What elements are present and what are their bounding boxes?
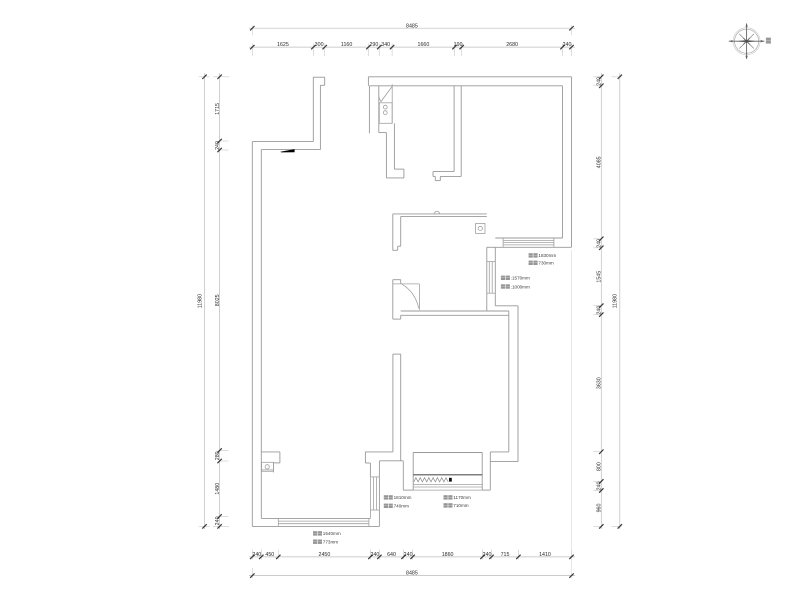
svg-text:11980: 11980	[612, 294, 618, 308]
svg-text:1810mm: 1810mm	[394, 495, 412, 500]
svg-text:1160: 1160	[341, 42, 352, 48]
svg-text:730mm: 730mm	[538, 261, 553, 266]
svg-text:240: 240	[215, 516, 221, 525]
svg-text:240: 240	[215, 141, 221, 150]
svg-text:11980: 11980	[198, 294, 204, 308]
svg-text:240: 240	[597, 239, 603, 248]
svg-text:240: 240	[404, 552, 413, 558]
svg-text:960: 960	[597, 504, 603, 513]
svg-text::1570mm: :1570mm	[511, 276, 530, 281]
svg-text:280: 280	[215, 451, 221, 460]
svg-text:240: 240	[483, 552, 492, 558]
svg-text:1860: 1860	[442, 552, 454, 558]
svg-text:4085: 4085	[597, 156, 603, 168]
svg-text:1830mm: 1830mm	[538, 253, 556, 258]
svg-text:710mm: 710mm	[453, 503, 468, 508]
svg-text:640: 640	[387, 552, 396, 558]
svg-text:240: 240	[597, 77, 603, 86]
svg-text:800: 800	[597, 462, 603, 471]
svg-text:1480: 1480	[215, 483, 221, 495]
svg-text:450: 450	[265, 552, 274, 558]
svg-text:2680: 2680	[506, 42, 518, 48]
svg-text:1660: 1660	[418, 42, 430, 48]
svg-text:773mm: 773mm	[323, 540, 338, 545]
svg-text:8485: 8485	[406, 23, 418, 29]
svg-text:240: 240	[597, 306, 603, 315]
svg-text:715: 715	[501, 552, 510, 558]
svg-text:8485: 8485	[406, 571, 418, 577]
svg-text:240: 240	[563, 42, 572, 48]
svg-text:1540mm: 1540mm	[323, 531, 341, 536]
svg-text:240: 240	[252, 552, 261, 558]
svg-text:1170mm: 1170mm	[453, 495, 471, 500]
svg-text::1000mm: :1000mm	[511, 284, 530, 289]
svg-text:240: 240	[597, 482, 603, 491]
svg-text:290: 290	[369, 42, 378, 48]
svg-text:1545: 1545	[597, 271, 603, 283]
svg-text:340: 340	[381, 42, 390, 48]
svg-text:1625: 1625	[277, 42, 289, 48]
svg-text:1410: 1410	[539, 552, 551, 558]
svg-text:740mm: 740mm	[394, 504, 409, 509]
svg-text:190: 190	[454, 42, 463, 48]
svg-text:8025: 8025	[215, 294, 221, 306]
svg-text:300: 300	[315, 42, 324, 48]
svg-text:1715: 1715	[215, 103, 221, 115]
svg-text:3630: 3630	[597, 377, 603, 389]
svg-text:240: 240	[370, 552, 379, 558]
svg-text:2450: 2450	[319, 552, 331, 558]
